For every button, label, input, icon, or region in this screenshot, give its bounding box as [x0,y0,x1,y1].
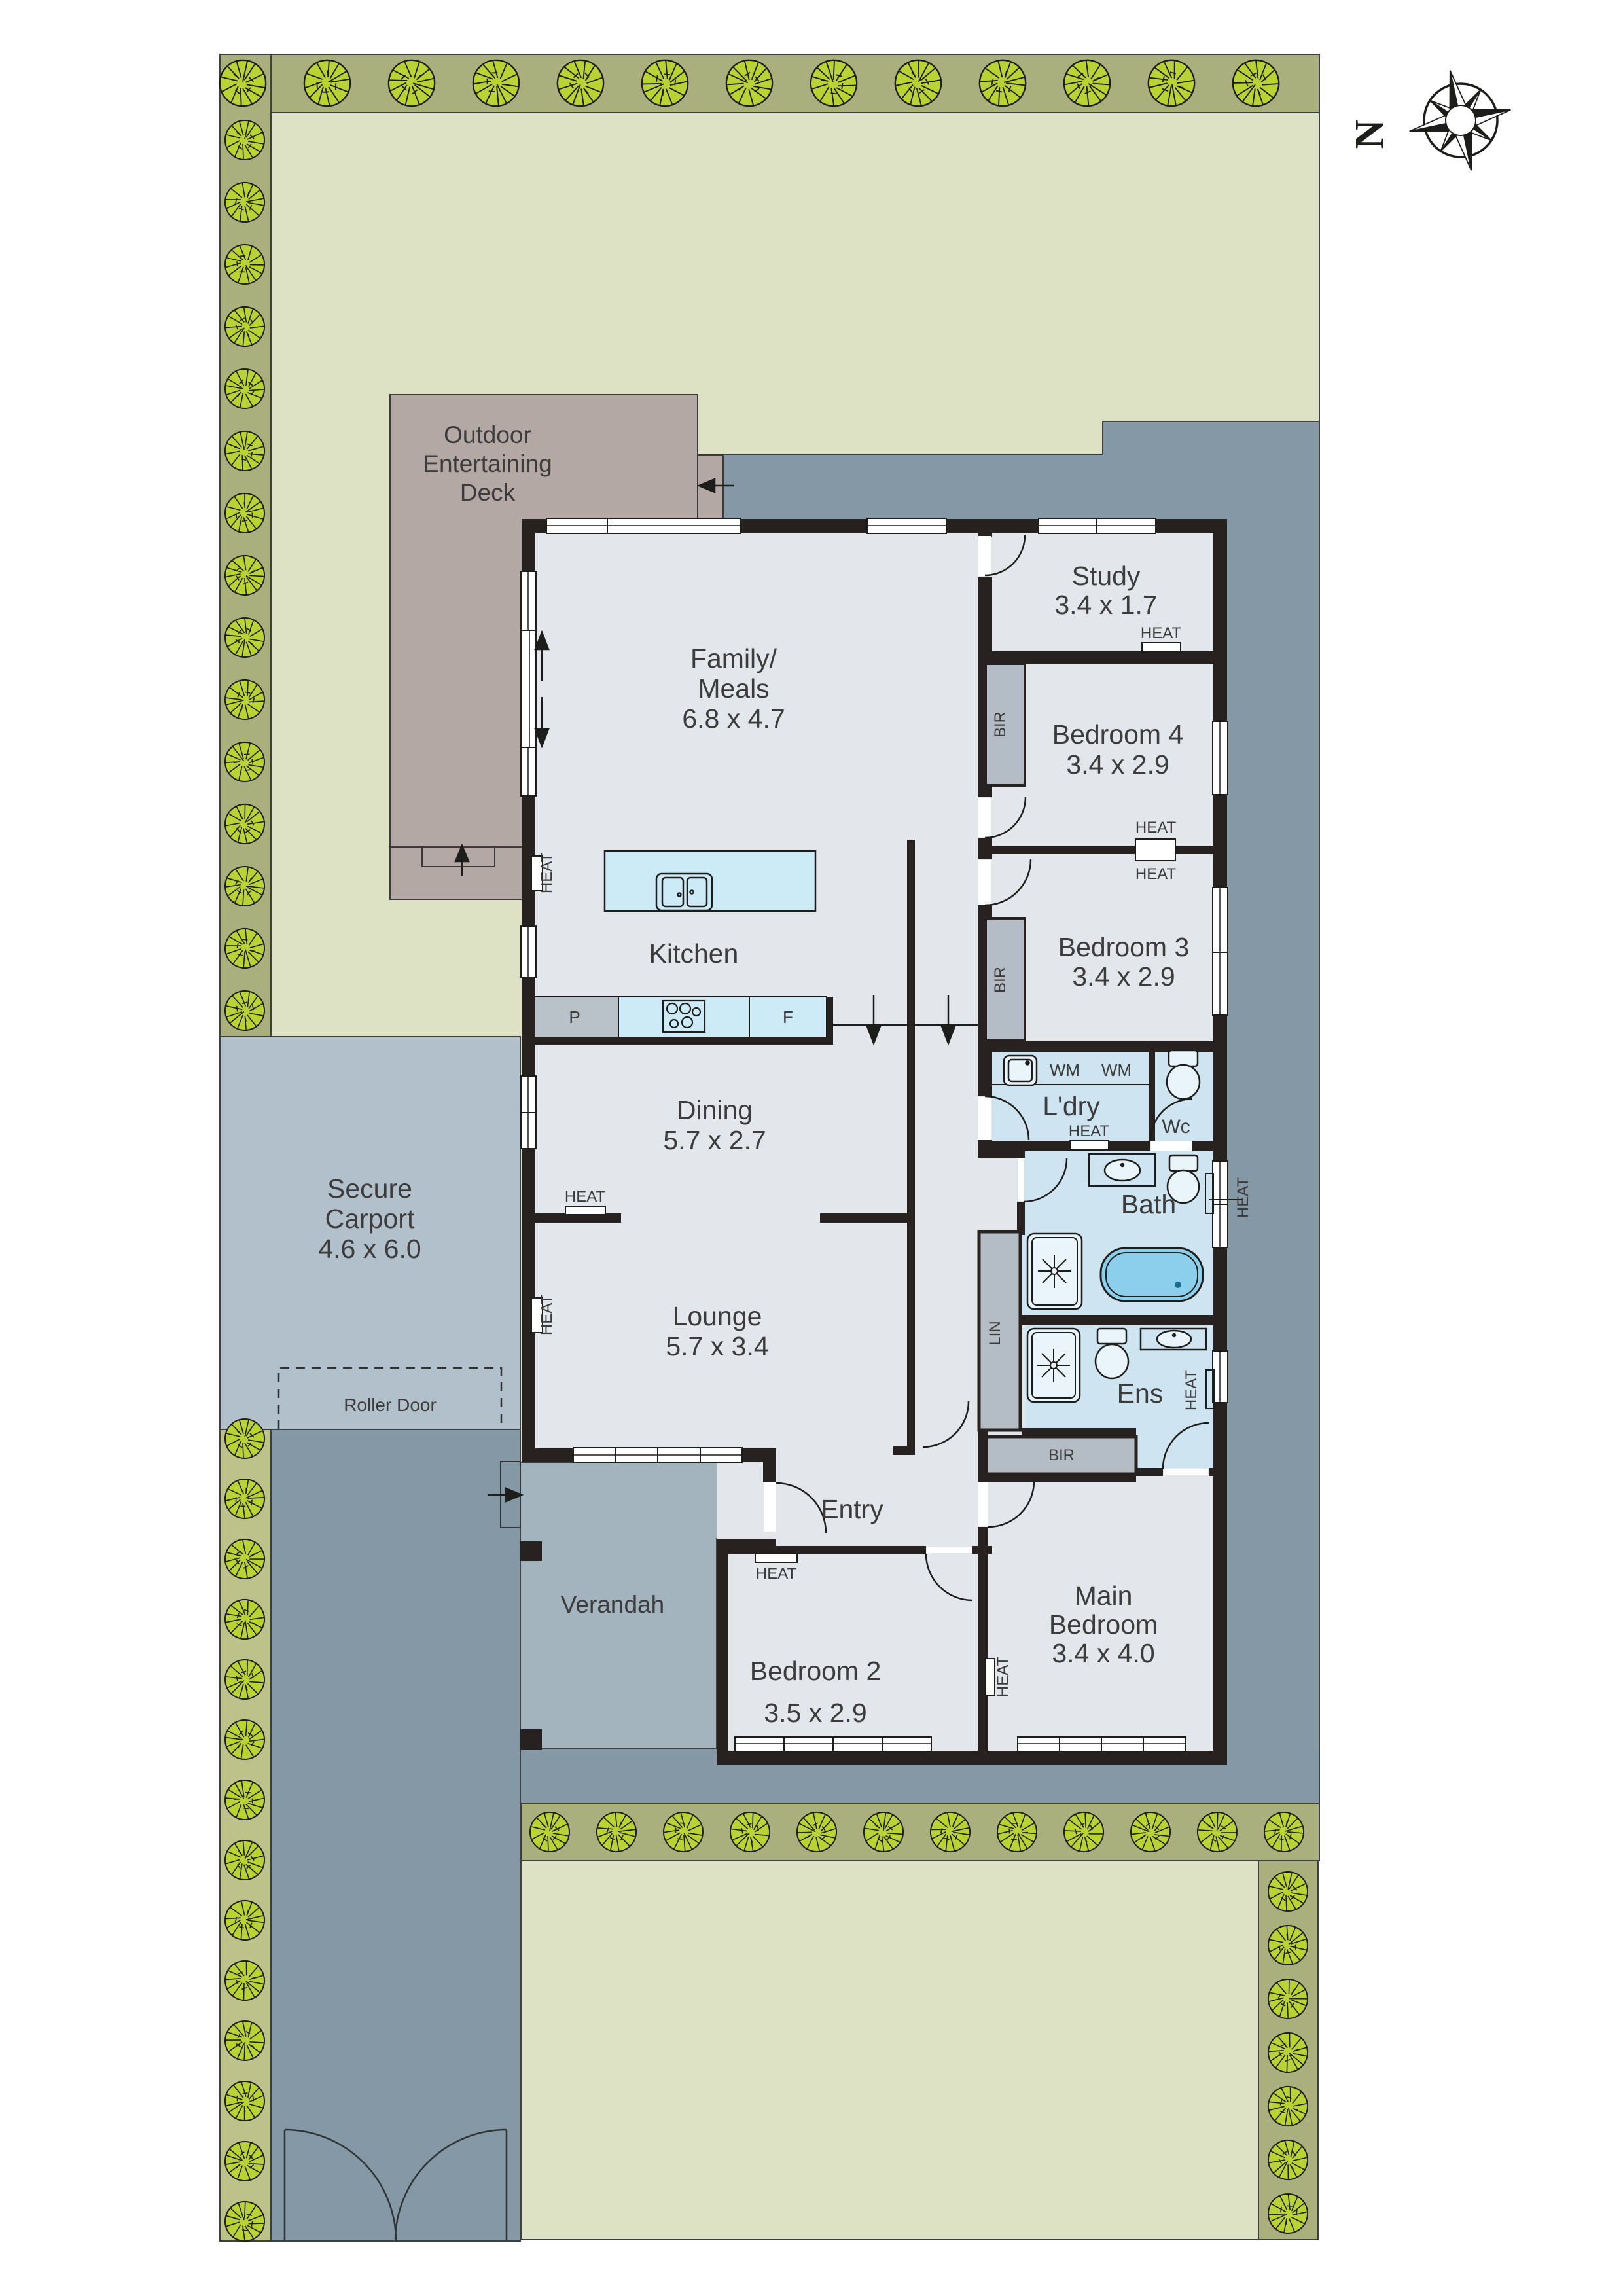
svg-text:BIR: BIR [991,711,1009,738]
svg-text:3.4 x 4.0: 3.4 x 4.0 [1052,1638,1154,1668]
svg-text:BIR: BIR [1048,1446,1075,1464]
svg-text:Wc: Wc [1162,1116,1190,1138]
svg-text:Dining: Dining [677,1095,753,1125]
svg-text:3.4 x 2.9: 3.4 x 2.9 [1072,961,1175,992]
svg-text:Meals: Meals [698,673,769,704]
svg-text:WM: WM [1101,1060,1132,1080]
svg-text:6.8 x 4.7: 6.8 x 4.7 [682,704,785,734]
svg-text:3.4 x 1.7: 3.4 x 1.7 [1054,590,1157,620]
svg-text:WM: WM [1050,1060,1080,1080]
svg-text:Secure: Secure [327,1174,412,1204]
svg-text:Bedroom 4: Bedroom 4 [1052,719,1184,749]
svg-text:P: P [569,1007,580,1027]
svg-text:L'dry: L'dry [1043,1091,1100,1121]
svg-text:HEAT: HEAT [1135,865,1177,883]
svg-text:5.7 x 3.4: 5.7 x 3.4 [666,1331,768,1361]
svg-text:HEAT: HEAT [538,853,556,894]
svg-text:F: F [783,1007,793,1027]
svg-text:HEAT: HEAT [994,1657,1012,1698]
svg-text:Verandah: Verandah [561,1591,664,1618]
svg-text:LIN: LIN [986,1321,1004,1345]
svg-text:Entertaining: Entertaining [423,450,552,477]
svg-text:HEAT: HEAT [1135,819,1177,836]
svg-text:HEAT: HEAT [756,1565,797,1583]
svg-text:Lounge: Lounge [673,1301,762,1331]
svg-text:HEAT: HEAT [565,1188,606,1206]
svg-text:3.5 x 2.9: 3.5 x 2.9 [764,1698,866,1728]
svg-text:Deck: Deck [460,479,516,506]
svg-text:Bedroom 2: Bedroom 2 [750,1656,882,1686]
svg-text:Kitchen: Kitchen [649,939,739,969]
svg-text:Main: Main [1075,1581,1133,1611]
svg-text:Ens: Ens [1117,1378,1164,1408]
svg-text:3.4 x 2.9: 3.4 x 2.9 [1066,749,1169,780]
svg-text:HEAT: HEAT [1183,1370,1200,1411]
svg-text:N: N [1347,120,1392,149]
svg-text:Bath: Bath [1121,1189,1176,1219]
svg-text:4.6 x 6.0: 4.6 x 6.0 [318,1234,421,1264]
svg-text:BIR: BIR [991,967,1009,993]
svg-text:HEAT: HEAT [1234,1177,1252,1219]
svg-text:Carport: Carport [325,1204,415,1234]
svg-text:Family/: Family/ [690,643,777,673]
svg-text:HEAT: HEAT [1141,624,1182,642]
svg-text:Study: Study [1072,561,1141,591]
svg-text:Bedroom: Bedroom [1049,1609,1158,1640]
svg-text:Bedroom 3: Bedroom 3 [1058,932,1190,962]
svg-text:HEAT: HEAT [538,1295,556,1336]
svg-text:Outdoor: Outdoor [444,422,531,448]
svg-text:Roller Door: Roller Door [344,1395,437,1415]
svg-text:5.7 x 2.7: 5.7 x 2.7 [663,1125,766,1155]
svg-text:Entry: Entry [821,1494,883,1524]
svg-text:HEAT: HEAT [1069,1122,1110,1140]
